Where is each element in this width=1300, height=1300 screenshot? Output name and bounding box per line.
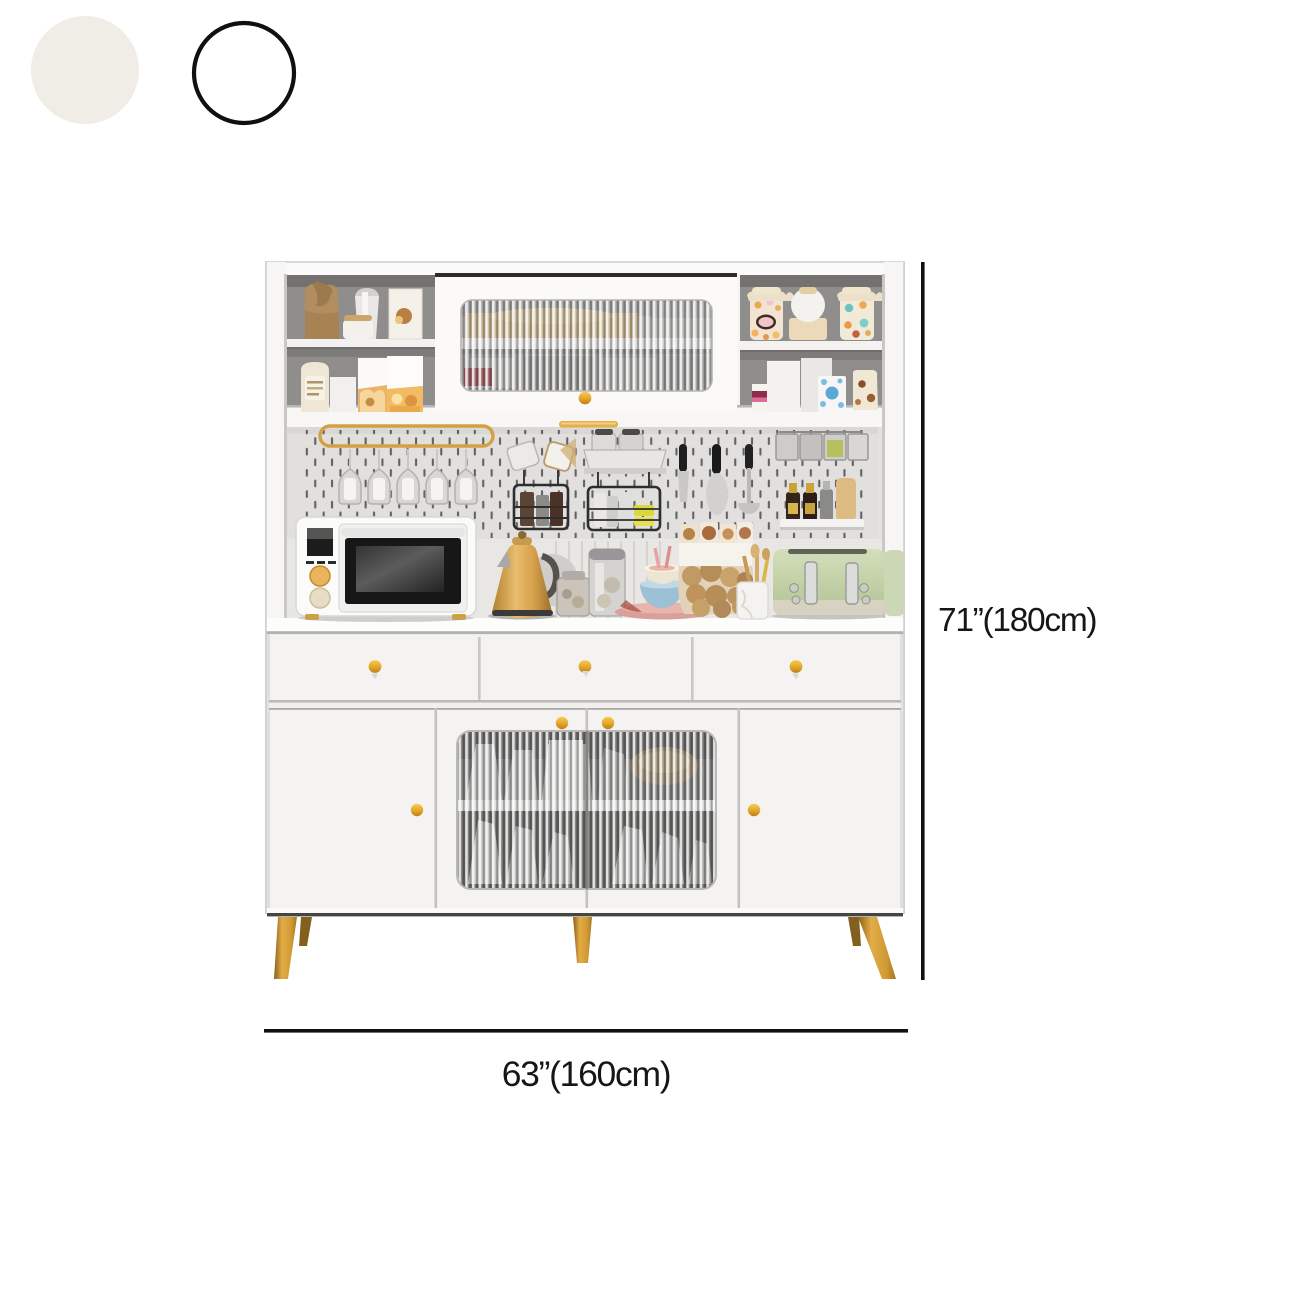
svg-text:63”(160cm): 63”(160cm) (502, 1054, 671, 1094)
svg-text:71”(180cm): 71”(180cm) (938, 602, 1096, 639)
